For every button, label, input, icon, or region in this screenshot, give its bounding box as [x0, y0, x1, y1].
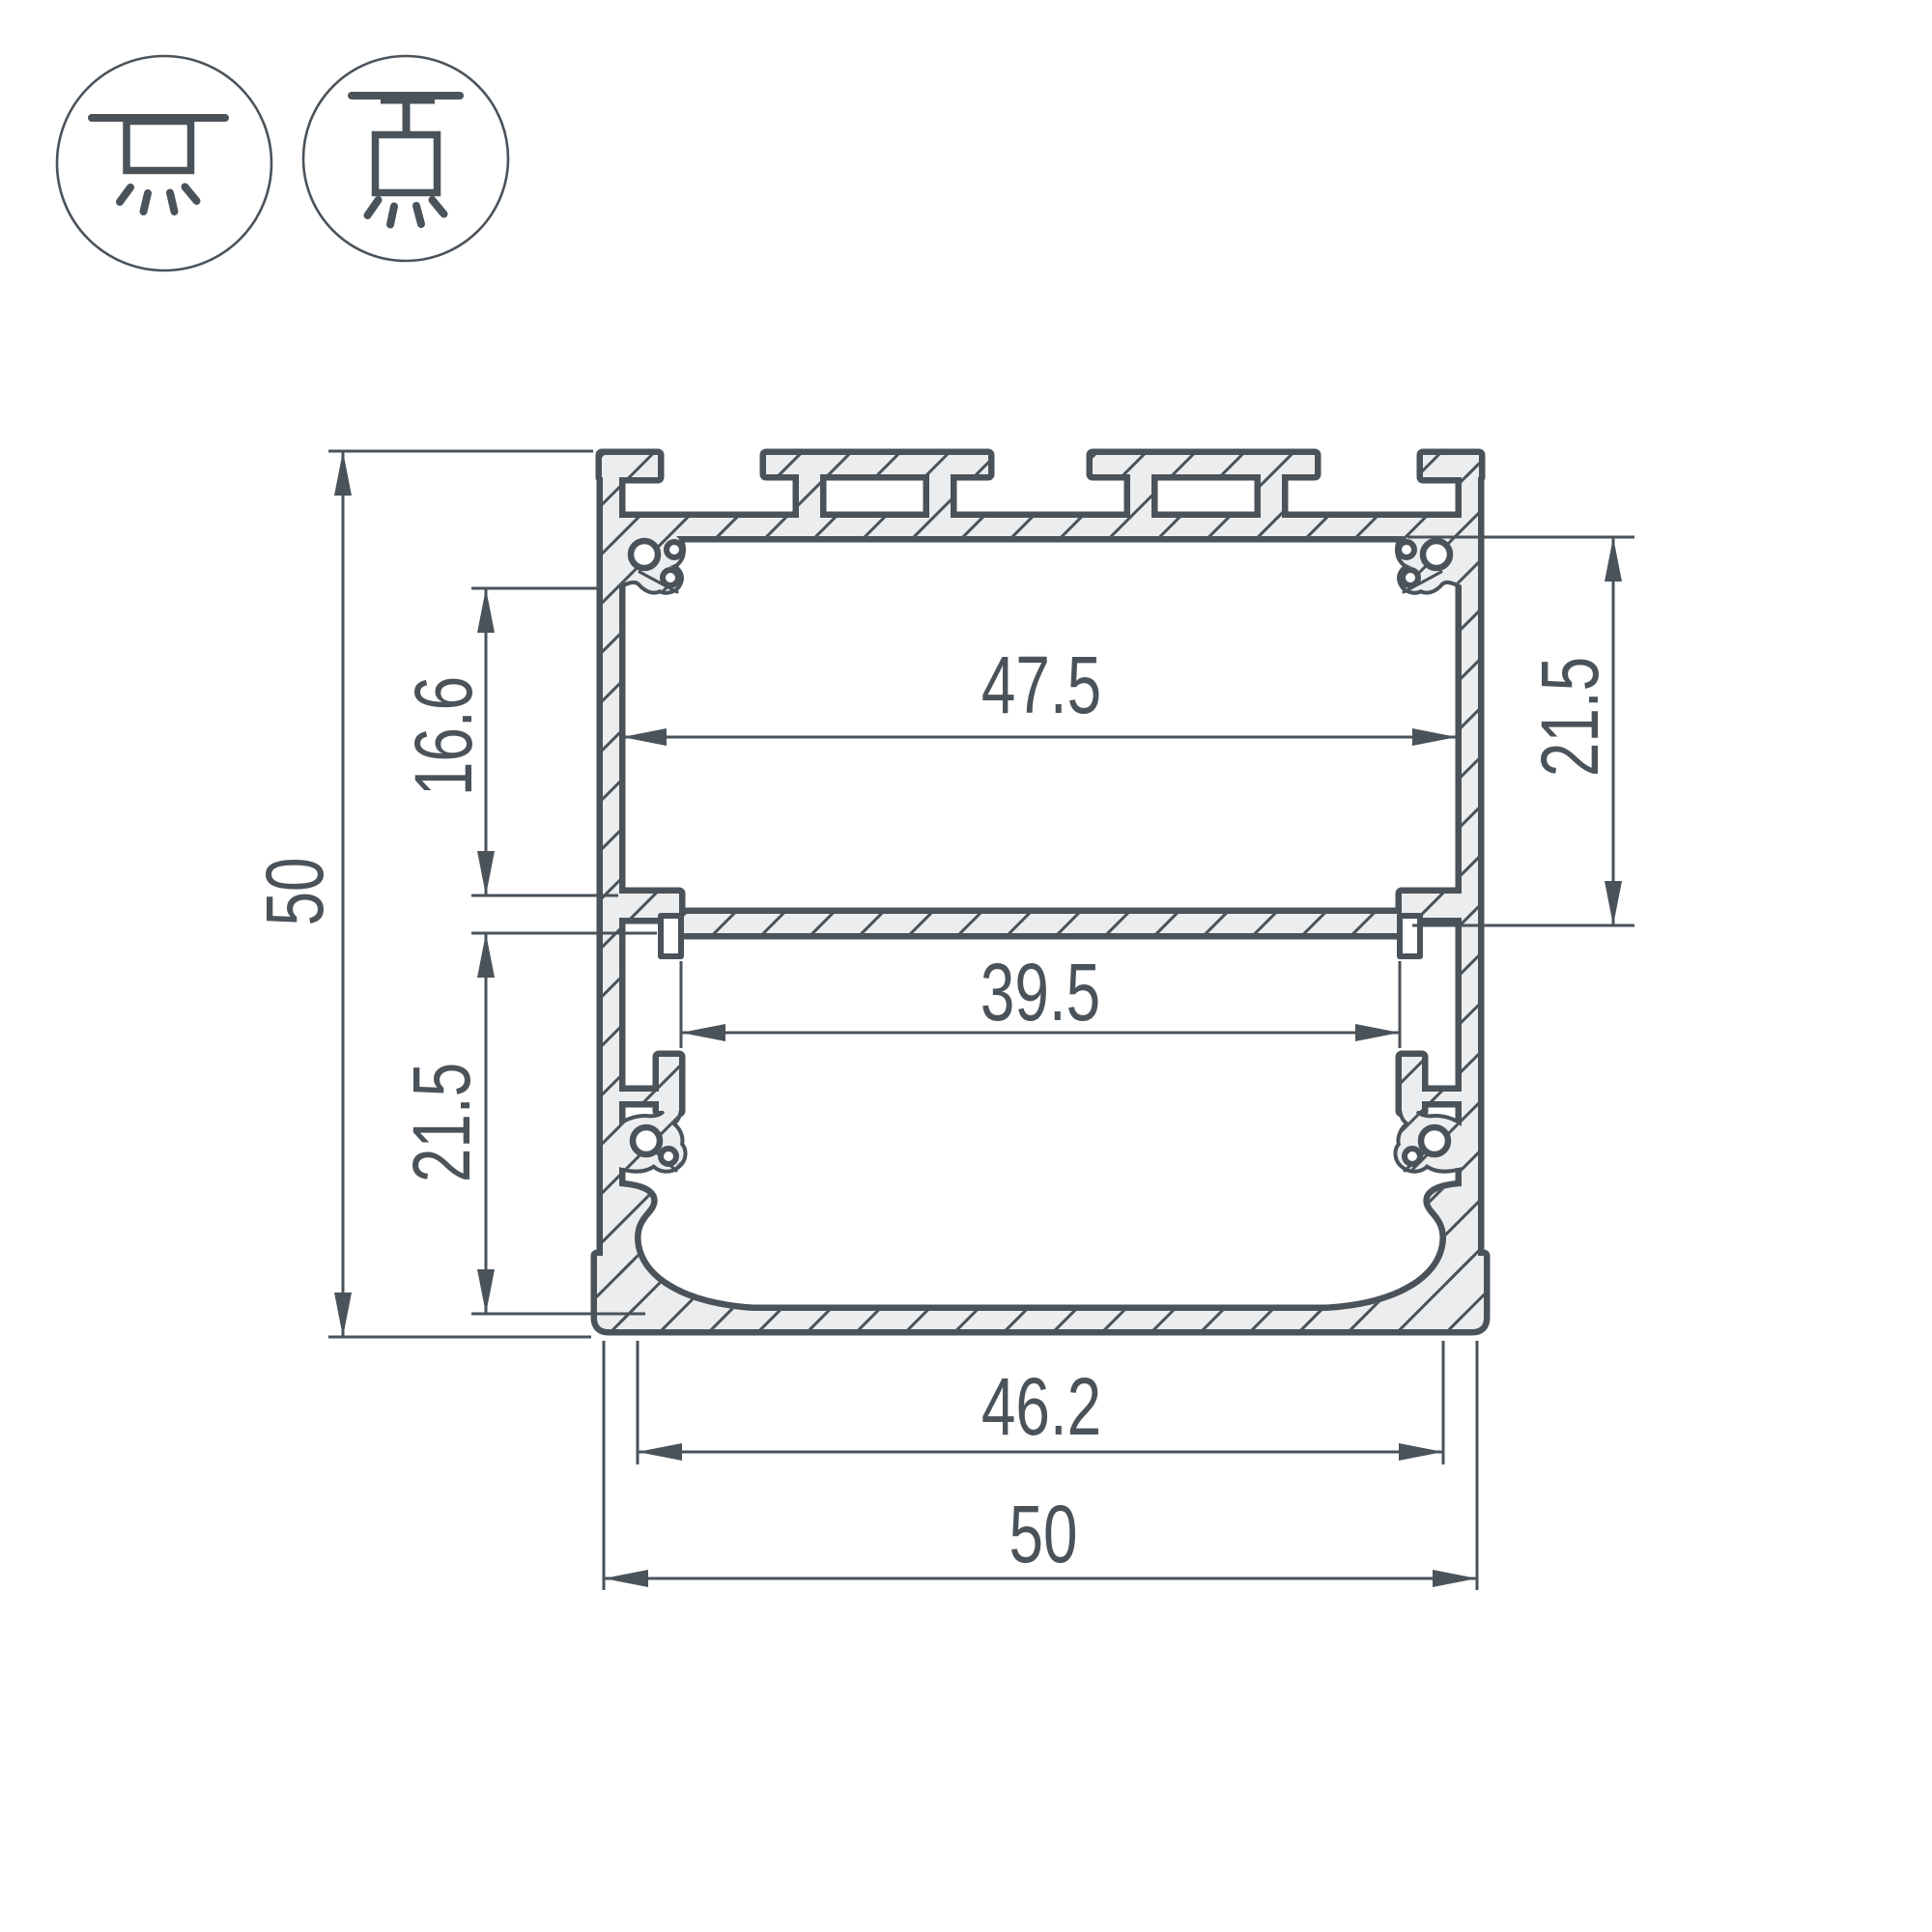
- svg-text:50: 50: [1009, 1488, 1077, 1579]
- svg-text:21.5: 21.5: [395, 1063, 487, 1182]
- svg-text:39.5: 39.5: [980, 946, 1100, 1037]
- svg-text:46.2: 46.2: [981, 1360, 1101, 1452]
- svg-text:21.5: 21.5: [1523, 657, 1615, 777]
- svg-text:47.5: 47.5: [981, 639, 1101, 730]
- svg-text:16.6: 16.6: [397, 676, 489, 796]
- svg-text:50: 50: [248, 857, 340, 925]
